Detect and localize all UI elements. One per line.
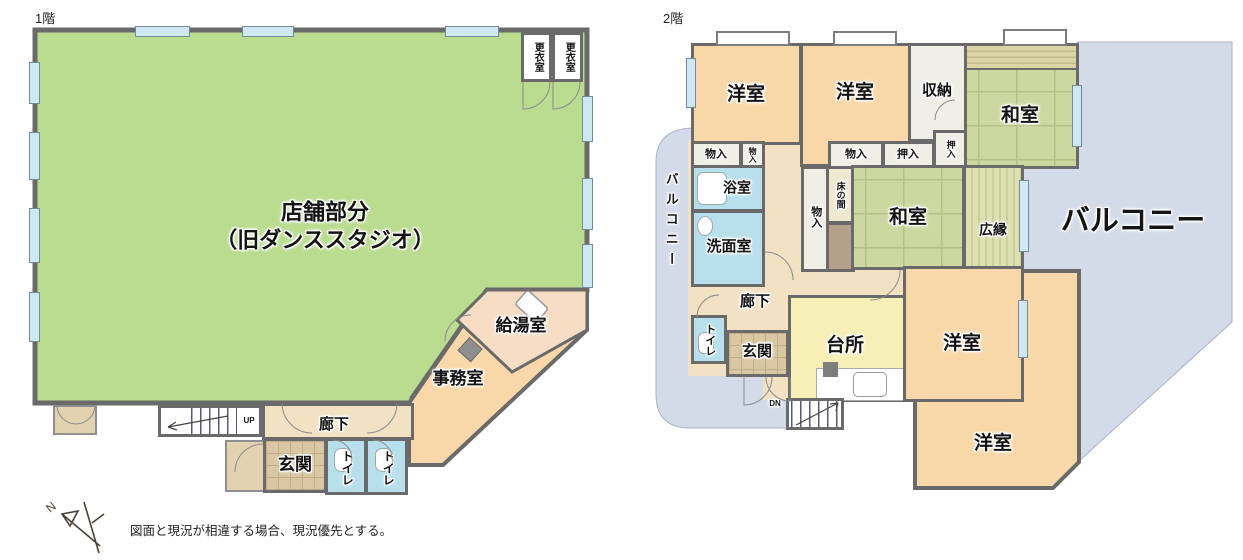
- window-icon: [29, 208, 40, 263]
- room-label-oshiire-1: 押入: [897, 149, 919, 160]
- room-label-toilet-2f: トイレ: [703, 324, 714, 357]
- entrance-porch: [225, 440, 265, 492]
- room-label-bath: 浴室: [723, 181, 751, 196]
- bay-window-icon: [716, 31, 790, 46]
- stairs-down-label: DN: [769, 400, 781, 408]
- room-label-japanese-2: 和室: [889, 208, 927, 228]
- window-icon: [582, 244, 593, 288]
- window-icon: [686, 58, 696, 108]
- room-label-toilet-2: トイレ: [382, 450, 394, 486]
- room-label-western-1: 洋室: [727, 85, 765, 105]
- floor2-title: 2階: [663, 8, 683, 27]
- floor-plan-canvas: 1階 店舗部分 （旧ダンススタジオ） 更衣室 更衣室 事務室 給湯室 UP 廊下…: [0, 0, 1243, 560]
- room-label-closet-4: 物入: [809, 206, 820, 228]
- window-icon: [29, 62, 40, 104]
- room-label-western-2: 洋室: [836, 83, 874, 103]
- room-label-veranda: 広縁: [979, 223, 1007, 238]
- room-label-balcony-main: バルコニー: [1061, 206, 1205, 236]
- room-label-toilet-1: トイレ: [341, 450, 353, 486]
- room-label-western-3: 洋室: [943, 334, 981, 354]
- room-label-closet-3: 物入: [845, 149, 867, 160]
- room-label-kitchen: 台所: [826, 336, 864, 356]
- window-icon: [1018, 300, 1028, 358]
- room-label-closet-2: 物入: [748, 147, 756, 163]
- room-label-changing-1: 更衣室: [532, 42, 542, 72]
- room-label-japanese-1: 和室: [1001, 106, 1039, 126]
- disclaimer-note: 図面と現況が相違する場合、現況優先とする。: [130, 520, 392, 539]
- window-icon: [135, 26, 190, 37]
- room-label-hallway-1f: 廊下: [319, 417, 349, 433]
- window-icon: [582, 96, 593, 142]
- room-label-oshiire-2: 押入: [945, 140, 954, 158]
- room-label-office: 事務室: [433, 370, 484, 388]
- window-icon: [242, 26, 294, 37]
- room-veranda: [963, 165, 1024, 272]
- room-label-washroom: 洗面室: [706, 239, 751, 255]
- bay-window-icon: [1003, 29, 1067, 46]
- room-label-entrance-1f: 玄関: [278, 456, 312, 474]
- room-label-store-line2: （旧ダンススタジオ）: [215, 230, 435, 253]
- window-icon: [29, 132, 40, 180]
- porch: [53, 405, 97, 435]
- room-label-closet-1: 物入: [705, 149, 727, 160]
- window-icon: [582, 178, 593, 230]
- japanese-room-alcove-band: [967, 46, 1076, 70]
- window-icon: [445, 26, 499, 37]
- room-label-entrance-2f: 玄関: [742, 344, 772, 360]
- room-label-changing-2: 更衣室: [563, 42, 573, 72]
- room-label-tokonoma: 床の間: [835, 182, 844, 209]
- room-label-storage: 収納: [922, 83, 952, 99]
- stair-treads: [191, 408, 237, 434]
- room-label-balcony-left: バルコニー: [664, 172, 678, 272]
- stairs-up-label: UP: [243, 417, 254, 425]
- stove-icon: [823, 362, 838, 377]
- window-icon: [1019, 180, 1029, 252]
- window-icon: [29, 292, 40, 342]
- bay-window-icon: [833, 31, 897, 46]
- window-icon: [1072, 85, 1082, 147]
- room-label-western-4: 洋室: [974, 434, 1012, 454]
- room-label-hallway-2f: 廊下: [740, 294, 770, 310]
- sink-icon: [853, 372, 887, 397]
- stair-treads: [791, 401, 841, 427]
- stairs-down: [786, 398, 844, 430]
- room-label-kitchenette: 給湯室: [496, 317, 547, 335]
- floor1-title: 1階: [35, 8, 55, 27]
- room-label-store-line1: 店舗部分: [281, 202, 369, 225]
- sink-icon: [697, 216, 713, 236]
